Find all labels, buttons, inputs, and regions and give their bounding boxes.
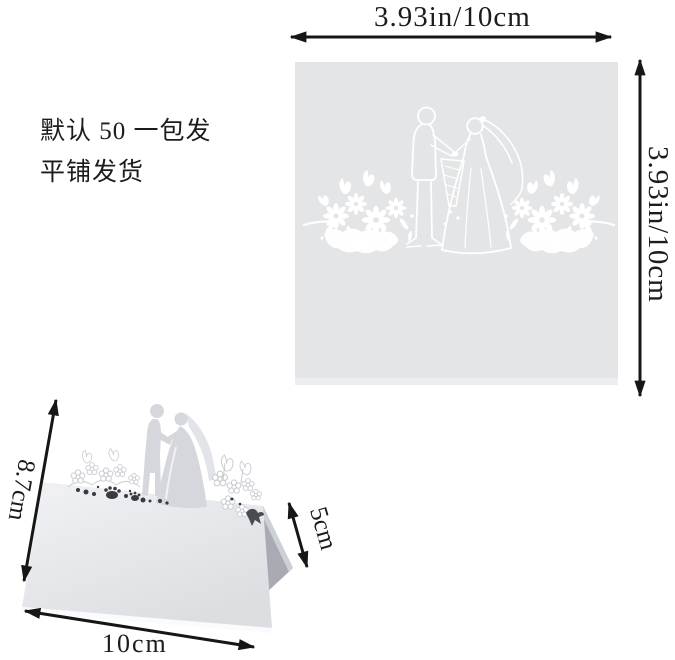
product-photo: 3.93in/10cm 3.93in/10cm 默认 50 一包发 平铺发货 8… [0, 0, 675, 660]
packing-note: 默认 50 一包发 平铺发货 [40, 111, 212, 193]
folded-card-left-flowers [68, 447, 140, 487]
flat-width-label: 3.93in/10cm [374, 1, 531, 34]
flat-card-bottom-edge [295, 378, 618, 385]
flat-card-figure [295, 62, 618, 385]
folded-card-figure [10, 395, 340, 660]
packing-note-line2: 平铺发货 [40, 152, 212, 193]
folded-width-label: 10cm [102, 629, 168, 659]
folded-card-front [22, 482, 272, 628]
couple-silhouette [142, 404, 216, 508]
flat-height-label: 3.93in/10cm [641, 146, 674, 303]
packing-note-line1: 默认 50 一包发 [40, 111, 212, 152]
